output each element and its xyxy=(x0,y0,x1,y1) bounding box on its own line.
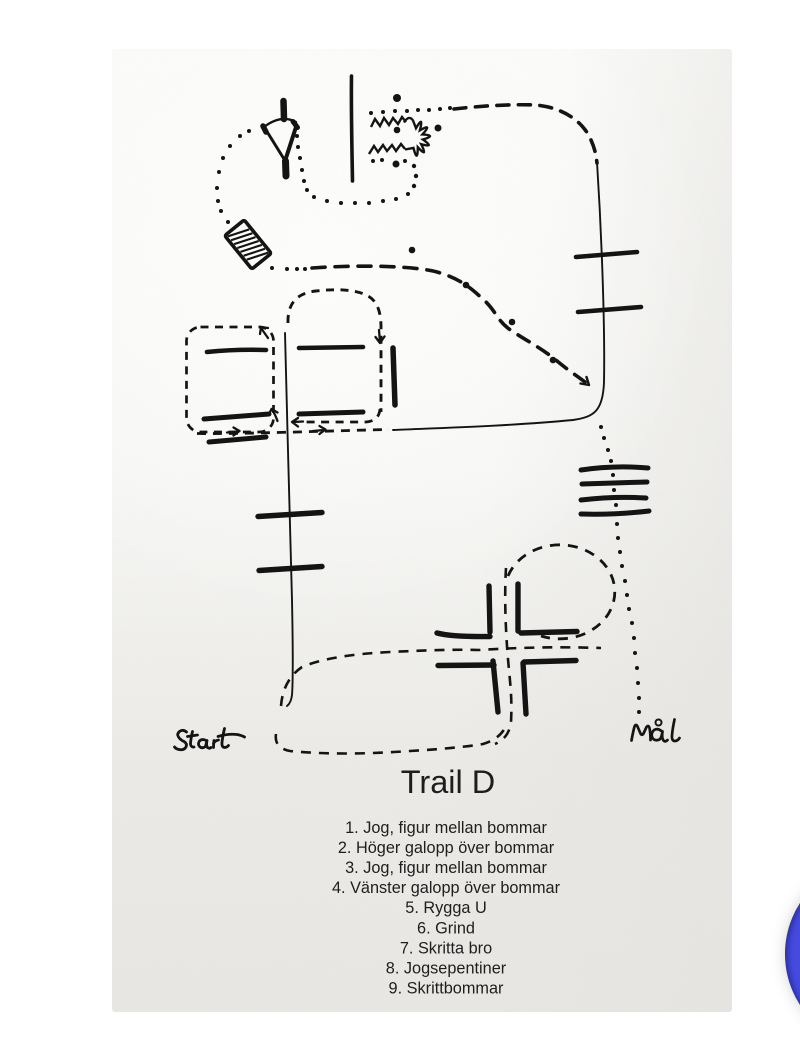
svg-text:5. Rygga U: 5. Rygga U xyxy=(405,899,486,917)
svg-text:7. Skritta bro: 7. Skritta bro xyxy=(400,939,492,957)
svg-text:8. Jogsepentiner: 8. Jogsepentiner xyxy=(386,960,507,978)
svg-text:3. Jog, figur mellan bommar: 3. Jog, figur mellan bommar xyxy=(345,859,547,877)
svg-text:1. Jog, figur mellan bommar: 1. Jog, figur mellan bommar xyxy=(345,819,547,837)
svg-text:9. Skrittbommar: 9. Skrittbommar xyxy=(389,980,504,998)
svg-text:2. Höger galopp över bommar: 2. Höger galopp över bommar xyxy=(338,839,555,857)
svg-text:4. Vänster galopp över bommar: 4. Vänster galopp över bommar xyxy=(332,879,561,897)
svg-text:6. Grind: 6. Grind xyxy=(417,919,475,937)
svg-text:Trail D: Trail D xyxy=(401,764,496,800)
